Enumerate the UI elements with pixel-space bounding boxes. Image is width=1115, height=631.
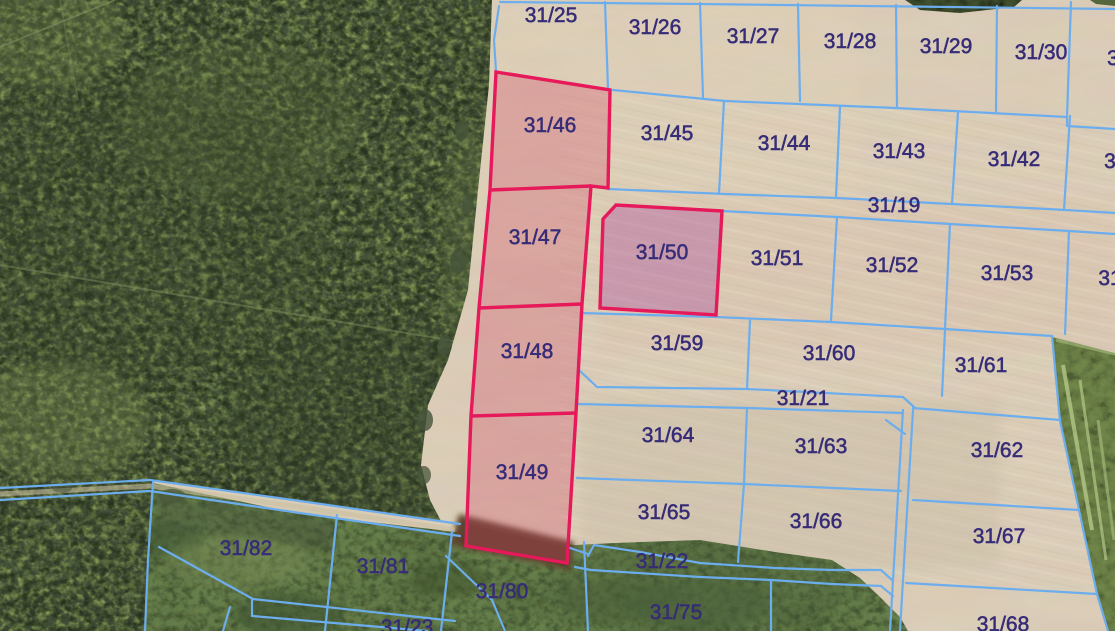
svg-text:31/60: 31/60 — [803, 342, 856, 365]
svg-text:31/53: 31/53 — [981, 262, 1034, 285]
svg-text:31/59: 31/59 — [651, 332, 704, 355]
svg-text:31/44: 31/44 — [758, 132, 811, 155]
svg-text:31/66: 31/66 — [790, 510, 843, 533]
svg-text:31/42: 31/42 — [988, 148, 1041, 171]
svg-text:31/82: 31/82 — [220, 537, 273, 560]
svg-text:31/49: 31/49 — [496, 461, 549, 484]
svg-text:31/50: 31/50 — [636, 241, 689, 264]
svg-text:31/22: 31/22 — [636, 550, 689, 573]
svg-text:31/29: 31/29 — [920, 35, 973, 58]
svg-text:3: 3 — [1107, 47, 1115, 70]
svg-text:31/48: 31/48 — [501, 340, 554, 363]
svg-text:31/23: 31/23 — [381, 616, 434, 631]
svg-text:31/51: 31/51 — [751, 247, 804, 270]
svg-text:31/27: 31/27 — [727, 25, 780, 48]
svg-text:31/30: 31/30 — [1015, 41, 1068, 64]
svg-text:31/52: 31/52 — [866, 254, 919, 277]
svg-text:31/80: 31/80 — [476, 580, 529, 603]
svg-text:31/81: 31/81 — [357, 555, 410, 578]
svg-text:31/21: 31/21 — [777, 387, 830, 410]
svg-text:31/65: 31/65 — [638, 501, 691, 524]
svg-text:31/68: 31/68 — [977, 613, 1030, 631]
svg-text:31/19: 31/19 — [868, 194, 921, 217]
svg-text:31/63: 31/63 — [795, 435, 848, 458]
svg-text:31/43: 31/43 — [873, 140, 926, 163]
svg-text:31/28: 31/28 — [824, 30, 877, 53]
svg-text:31/45: 31/45 — [641, 122, 694, 145]
svg-text:31/46: 31/46 — [524, 114, 577, 137]
svg-text:31/75: 31/75 — [650, 601, 703, 624]
svg-text:31/67: 31/67 — [973, 525, 1026, 548]
svg-text:3: 3 — [1104, 150, 1115, 173]
svg-text:31/64: 31/64 — [642, 424, 695, 447]
svg-text:31/62: 31/62 — [971, 439, 1024, 462]
svg-text:31/47: 31/47 — [509, 226, 562, 249]
svg-text:31: 31 — [1098, 267, 1115, 290]
svg-text:31/26: 31/26 — [629, 16, 682, 39]
svg-text:31/61: 31/61 — [955, 354, 1008, 377]
svg-text:31/25: 31/25 — [525, 4, 578, 27]
